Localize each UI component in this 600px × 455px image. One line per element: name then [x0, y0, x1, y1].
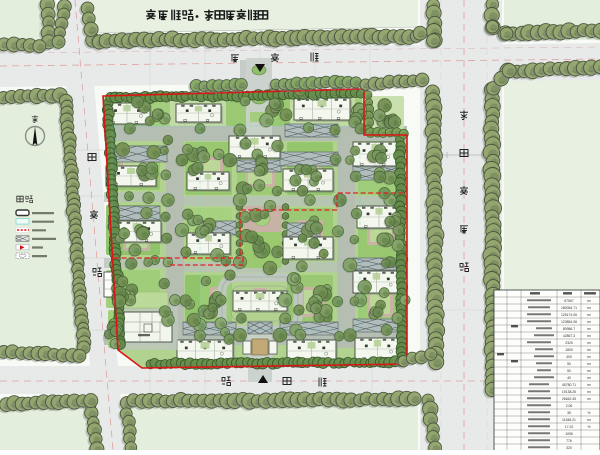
svg-text:11548.21: 11548.21: [562, 418, 576, 422]
svg-text:1096: 1096: [565, 432, 573, 436]
svg-text:35: 35: [567, 411, 571, 415]
svg-text:%: %: [587, 425, 590, 429]
svg-text:42867.3: 42867.3: [563, 334, 575, 338]
svg-text:67567: 67567: [564, 299, 574, 303]
svg-text:19138.26: 19138.26: [562, 390, 576, 394]
svg-text:320: 320: [566, 446, 572, 450]
svg-text:1800: 1800: [565, 348, 573, 352]
svg-text:2.06: 2.06: [566, 404, 573, 408]
svg-text:50: 50: [567, 369, 571, 373]
svg-text:50: 50: [567, 362, 571, 366]
svg-text:17.02: 17.02: [565, 425, 574, 429]
svg-text:776: 776: [566, 439, 572, 443]
svg-text:400: 400: [566, 355, 572, 359]
svg-text:40: 40: [567, 376, 571, 380]
svg-text:26642.45: 26642.45: [562, 397, 576, 401]
svg-text:80986.7: 80986.7: [563, 327, 575, 331]
svg-text:45780.71: 45780.71: [562, 383, 576, 387]
svg-text:123854.06: 123854.06: [561, 320, 577, 324]
svg-text:%: %: [587, 411, 590, 415]
svg-text:180054.71: 180054.71: [561, 306, 577, 310]
svg-text:125174.06: 125174.06: [561, 313, 577, 317]
svg-text:2320: 2320: [565, 341, 573, 345]
